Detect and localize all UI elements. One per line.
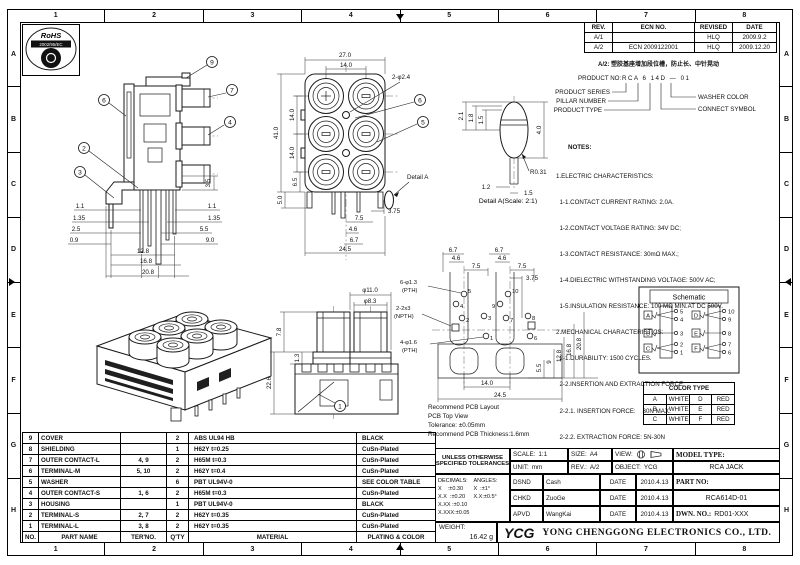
pillar-number-label: PILLAR NUMBER [556, 98, 606, 105]
dim-label: 24.5 [339, 246, 352, 253]
rohs-label: RoHS [41, 31, 61, 40]
group-letter: E [694, 332, 698, 338]
cell: C [644, 415, 667, 425]
product-no-label: PRODUCT NO: [578, 75, 621, 82]
dim-label: 1.35 [73, 215, 86, 222]
ruler-row: C [7, 153, 20, 218]
cell [121, 499, 167, 510]
header-cell: REVISED [695, 23, 733, 33]
cell: 2009.9.2 [733, 33, 777, 43]
designer-name: Cash [543, 474, 600, 490]
cell: 4 [23, 488, 39, 499]
dim-label: 14.0 [481, 380, 494, 387]
group-letter: D [694, 314, 698, 320]
schematic-title: Schematic [673, 295, 706, 302]
cell: CuSn-Plated [357, 521, 436, 532]
cell: 2 [167, 488, 189, 499]
cell: 6 [167, 477, 189, 488]
center-mark-icon [9, 278, 15, 286]
top-view-drawing: φ11.0 φ8.3 7.8 1.3 22.6 1 [262, 278, 402, 426]
cell: 2 [167, 466, 189, 477]
cell: A/2 [585, 43, 613, 53]
ruler-col: 8 [696, 543, 793, 556]
center-mark-icon [396, 14, 404, 20]
ruler-col: 8 [696, 9, 793, 22]
dim-label: 4.0 [536, 125, 543, 134]
cell: 1, 6 [121, 488, 167, 499]
dim-label: 14.0 [289, 146, 296, 159]
dwn-no-value: RD01-XXX [714, 511, 748, 518]
date-label: DATE [600, 474, 636, 490]
dim-label: 1.3 [294, 353, 301, 362]
dim-label: 6.7 [449, 247, 458, 254]
cell: 2 [23, 510, 39, 521]
product-no-value: RCA 6 14D — 01 [622, 75, 690, 82]
cell: 8 [23, 444, 39, 455]
header-cell: ECN NO. [613, 23, 695, 33]
pin-number: 4 [460, 304, 464, 310]
dim-label: 16.8 [140, 258, 153, 265]
group-letter: A [646, 314, 650, 320]
pin-number: 6 [728, 351, 731, 357]
dim-label: 2.5 [72, 226, 81, 233]
dim-label: 1.1 [208, 203, 217, 210]
part-no-label: PART NO: [676, 478, 709, 486]
dim-label: 5.5 [536, 363, 543, 372]
table-row: 9 COVER 2 ABS UL94 HB BLACK [23, 433, 436, 444]
ruler-row: E [7, 283, 20, 348]
cell: 5, 10 [121, 466, 167, 477]
weight-label: WEIGHT: [439, 524, 465, 531]
cell: SHIELDING [39, 444, 121, 455]
dim-label: 2-φ2.4 [392, 74, 411, 81]
cell: RED [712, 405, 735, 415]
date-label: DATE [600, 506, 636, 522]
pin-number: 9 [728, 318, 731, 324]
dim-label: 1.35 [208, 215, 221, 222]
cell: WASHER [39, 477, 121, 488]
table-row: 1TERMINAL-L3, 82H62Y t=0.35CuSn-Plated [23, 521, 436, 532]
dim-label: 7.5 [518, 263, 527, 270]
size-label: SIZE: [571, 451, 587, 458]
pcb-note-line: PCB Top View [428, 412, 593, 421]
header-cell: PART NAME [39, 532, 121, 543]
dim-label: 9.0 [206, 237, 215, 244]
pin-number: 2 [680, 343, 683, 349]
cell: ABS UL94 HB [189, 433, 357, 444]
dim-label: 4.6 [498, 255, 507, 262]
designer-role: DSND [510, 474, 543, 490]
pin-number: 4 [680, 318, 684, 324]
pin-number: 7 [510, 318, 513, 324]
cell: RED [712, 395, 735, 405]
cell: B [644, 405, 667, 415]
table-row: A/1 HLQ 2009.9.2 [585, 33, 777, 43]
header-cell: PLATING & COLOR [357, 532, 436, 543]
unit-label: UNIT: [513, 464, 529, 471]
cell: 2, 7 [121, 510, 167, 521]
ruler-col: 5 [401, 543, 499, 556]
pin-number: 2 [466, 318, 469, 324]
header-cell: DATE [733, 23, 777, 33]
cell: HOUSING [39, 499, 121, 510]
callout: 9 [210, 59, 214, 66]
group-letter: B [646, 332, 650, 338]
header-cell: REV. [585, 23, 613, 33]
ruler-col: 6 [499, 543, 597, 556]
table-row: 5WASHER6PBT UL94V-0SEE COLOR TABLE [23, 477, 436, 488]
ruler-col: 4 [302, 543, 400, 556]
scale-label: SCALE: [513, 451, 535, 458]
cell: H62Y t=0.25 [189, 444, 357, 455]
ruler-col: 6 [499, 9, 597, 22]
company-name: YONG CHENGGONG ELECTRONICS CO., LTD. [542, 528, 771, 538]
dim-label: 1.5 [524, 190, 533, 197]
model-type-value: RCA JACK [673, 461, 780, 474]
ruler-col: 1 [7, 543, 105, 556]
pin-number: 6 [534, 336, 537, 342]
ruler-col: 7 [597, 9, 695, 22]
header-cell: TER'NO. [121, 532, 167, 543]
note-line: 1-2.CONTACT VOLTAGE RATING: 34V DC; [556, 225, 792, 234]
ruler-col: 2 [105, 9, 203, 22]
cell: 6 [23, 466, 39, 477]
cell: PBT UL94V-0 [189, 499, 357, 510]
cell: 1 [23, 521, 39, 532]
cell: 2009.12.20 [733, 43, 777, 53]
table-row: REV. ECN NO. REVISED DATE [585, 23, 777, 33]
note-line: 1.ELECTRIC CHARACTERISTICS: [556, 173, 792, 182]
cell: OUTER CONTACT-L [39, 455, 121, 466]
dim-label: 12.8 [556, 349, 563, 362]
rev-value: A/2 [590, 464, 599, 471]
cell: 2 [167, 510, 189, 521]
pth-label: 4-φ1.6 [400, 340, 417, 346]
title-block: UNLESS OTHERWISE SPECIFIED TOLERANCES DE… [435, 448, 780, 543]
table-row: 2TERMINAL-S2, 72H62Y t=0.35CuSn-Plated [23, 510, 436, 521]
cell [121, 433, 167, 444]
checker-role: CHKD [510, 490, 543, 506]
table-row: A WHITE D RED [644, 395, 735, 405]
dim-label: 6.5 [292, 177, 299, 186]
callout: 1 [338, 403, 342, 410]
object-value: YCG [644, 464, 658, 471]
angle-tolerances: ANGLES: X :±1° X.X:±0.5° [473, 477, 497, 501]
cell [613, 33, 695, 43]
header-cell: MATERIAL [189, 532, 357, 543]
pin-number: 8 [728, 332, 731, 338]
part-no-value: RCA614D-01 [673, 490, 780, 506]
center-mark-icon [396, 544, 404, 550]
pcb-notes: Recommend PCB Layout PCB Top View Tolera… [428, 403, 593, 439]
pin-number: 10 [512, 289, 518, 295]
dim-label: 7.5 [355, 215, 364, 222]
pin-number: 5 [468, 289, 471, 295]
group-letter: F [694, 347, 698, 353]
cell: TERMINAL-L [39, 521, 121, 532]
scale-value: 1:1 [538, 451, 547, 458]
cell: BLACK [357, 499, 436, 510]
npth-label: (NPTH) [394, 314, 414, 320]
model-type-label: MODEL TYPE: [676, 451, 725, 459]
ruler-row: A [7, 22, 20, 87]
connect-symbol-label: CONNECT SYMBOL [698, 106, 757, 113]
approver-name: WangKai [543, 506, 600, 522]
dim-label: 20.8 [576, 337, 583, 350]
ruler-row: H [7, 479, 20, 543]
dim-label: φ11.0 [362, 287, 378, 294]
cell: 1 [167, 499, 189, 510]
cell: RED [712, 415, 735, 425]
dim-label: 6.7 [495, 247, 504, 254]
cell: H62Y t=0.4 [189, 466, 357, 477]
ruler-col: 3 [204, 9, 302, 22]
cell: F [689, 415, 712, 425]
dim-label: 1.8 [468, 113, 475, 122]
cell: TERMINAL-M [39, 466, 121, 477]
cell: CuSn-Plated [357, 455, 436, 466]
dim-label: 3.75 [526, 275, 539, 282]
dim-label: 27.0 [339, 52, 352, 59]
table-row: 3HOUSING1PBT UL94V-0BLACK [23, 499, 436, 510]
approver-role: APVD [510, 506, 543, 522]
table-row: 8SHIELDING1H62Y t=0.25CuSn-Plated [23, 444, 436, 455]
cell: SEE COLOR TABLE [357, 477, 436, 488]
rev-label: REV.: [571, 464, 587, 471]
pin-number: 1 [490, 336, 493, 342]
pin-number: 7 [728, 343, 731, 349]
dim-label: 2.1 [458, 111, 465, 120]
date-value: 2010.4.13 [636, 506, 673, 522]
pcb-layout-drawing: 5 4 2 3 1 10 9 7 8 6 6-φ1.3 (PTH) 2-2x3 … [392, 246, 608, 414]
checker-name: ZuoGe [543, 490, 600, 506]
dim-label: 7.8 [276, 327, 283, 336]
cell: CuSn-Plated [357, 510, 436, 521]
cell: CuSn-Plated [357, 488, 436, 499]
cell: TERMINAL-S [39, 510, 121, 521]
object-label: OBJECT: [615, 464, 641, 471]
dim-label: 4.6 [349, 226, 358, 233]
dim-label: 9 [546, 360, 553, 364]
rohs-directive: 2002/95/EC [39, 42, 62, 47]
projection-symbols-icon [636, 450, 666, 459]
tolerance-note: UNLESS OTHERWISE SPECIFIED TOLERANCES [436, 455, 509, 467]
npth-label: 2-2x3 [396, 306, 411, 312]
ruler-row: F [7, 348, 20, 413]
dim-label: 20.8 [142, 269, 155, 276]
pin-number: 3 [488, 316, 491, 322]
cell: WHITE [666, 405, 689, 415]
front-view-drawing: 27.0 14.0 2-φ2.4 41.0 14.0 14.0 6.5 5.0 … [237, 48, 465, 266]
cell: WHITE [666, 395, 689, 405]
dim-label: 22.6 [266, 376, 273, 389]
pin-number: 1 [680, 351, 683, 357]
ruler-col: 2 [105, 543, 203, 556]
pth-label: (PTH) [402, 348, 418, 354]
cell: BLACK [357, 433, 436, 444]
cell: 7 [23, 455, 39, 466]
cell: 3 [23, 499, 39, 510]
table-row: 7OUTER CONTACT-L4, 92H65M t=0.3CuSn-Plat… [23, 455, 436, 466]
decimals-tolerances: DECIMALS: X :±0.30 X.X :±0.20 X.XX :±0.1… [438, 477, 469, 517]
table-row: C WHITE F RED [644, 415, 735, 425]
pin-number: 8 [532, 316, 535, 322]
pcb-note-line: Recommend PCB Thickness:1.6mm [428, 430, 593, 439]
callout: 6 [418, 97, 422, 104]
dim-label: 24.5 [494, 392, 507, 399]
table-row: COLOR TYPE [644, 383, 735, 395]
table-row: A/2 ECN 2009122001 HLQ 2009.12.20 [585, 43, 777, 53]
dim-label: 1.2 [482, 184, 491, 191]
dim-label: 3.75 [388, 208, 401, 215]
ruler-col: 5 [401, 9, 499, 22]
pcb-note-line: Recommend PCB Layout [428, 403, 593, 412]
callout: 3 [78, 169, 82, 176]
dim-label: 3.5 [205, 178, 212, 187]
cell: ECN 2009122001 [613, 43, 695, 53]
ruler-row: D [7, 218, 20, 283]
pth-label: 6-φ1.3 [400, 280, 417, 286]
dim-label: 7.5 [472, 263, 481, 270]
cell: 2 [167, 433, 189, 444]
note-line: 1-1.CONTACT CURRENT RATING: 2.0A. [556, 199, 792, 208]
callout: 4 [228, 119, 232, 126]
dim-label: 16.8 [566, 343, 573, 356]
pin-number: 3 [680, 332, 683, 338]
dim-label: 14.0 [340, 62, 353, 69]
isometric-view-drawing [45, 280, 285, 432]
dim-label: 4.6 [452, 255, 461, 262]
table-row: 4OUTER CONTACT-S1, 62H65M t=0.3CuSn-Plat… [23, 488, 436, 499]
cell: H65M t=0.3 [189, 488, 357, 499]
cell: H62Y t=0.35 [189, 521, 357, 532]
company-logo: YCG [504, 525, 534, 541]
revision-note: A/2: 塑胶基座增加段位槽，防止长、中针晃动 [598, 59, 719, 68]
revision-table: REV. ECN NO. REVISED DATE A/1 HLQ 2009.9… [584, 22, 777, 53]
cell: PBT UL94V-0 [189, 477, 357, 488]
cell: CuSn-Plated [357, 466, 436, 477]
dim-label: 1.1 [76, 203, 85, 210]
pin-number: 9 [492, 304, 495, 310]
header-cell: NO. [23, 532, 39, 543]
cell: A [644, 395, 667, 405]
pcb-holes: 5 4 2 3 1 10 9 7 8 6 [452, 289, 537, 342]
cell: H65M t=0.3 [189, 455, 357, 466]
cell: 1 [167, 444, 189, 455]
cell: 9 [23, 433, 39, 444]
product-code-diagram: PRODUCT NO: RCA 6 14D — 01 PRODUCT SERIE… [550, 68, 792, 126]
table-row: NO. PART NAME TER'NO. Q'TY MATERIAL PLAT… [23, 532, 436, 543]
color-table-title: COLOR TYPE [644, 383, 735, 395]
cell: A/1 [585, 33, 613, 43]
dim-label: 1.5 [478, 115, 485, 124]
cell [121, 444, 167, 455]
size-value: A4 [590, 451, 598, 458]
dim-label: 5.5 [200, 226, 209, 233]
cell: HLQ [695, 33, 733, 43]
dim-label: 0.9 [70, 237, 79, 244]
cell: 2 [167, 455, 189, 466]
cell: CuSn-Plated [357, 444, 436, 455]
ruler-col: 1 [7, 9, 105, 22]
side-view-drawing: 9 7 4 6 2 3 3.5 1.1 1.1 1.35 1.35 2.5 5.… [48, 50, 258, 282]
date-label: DATE [600, 490, 636, 506]
cell: 4, 9 [121, 455, 167, 466]
cell: D [689, 395, 712, 405]
table-row: 6TERMINAL-M5, 102H62Y t=0.4CuSn-Plated [23, 466, 436, 477]
weight-value: 16.42 g [470, 534, 493, 541]
dim-label: 41.0 [273, 126, 280, 139]
cell: COVER [39, 433, 121, 444]
parts-table: 9 COVER 2 ABS UL94 HB BLACK 8SHIELDING1H… [22, 432, 436, 543]
dim-label: 12.8 [137, 248, 150, 255]
pin-number: 5 [680, 310, 683, 316]
detail-a-caption: Detail A(Scale: 2:1) [479, 198, 537, 204]
notes-title: NOTES: [556, 144, 792, 153]
unit-value: mm [532, 464, 543, 471]
dim-label: 6.7 [350, 237, 359, 244]
callout: 5 [421, 119, 425, 126]
pth-label: (PTH) [402, 288, 418, 294]
ruler-row: G [7, 414, 20, 479]
callout: 7 [230, 87, 234, 94]
date-value: 2010.4.13 [636, 490, 673, 506]
cell: 2 [167, 521, 189, 532]
detail-a-drawing: 2.1 1.8 1.5 4.0 R0.31 1.2 1.5 Detail A(S… [452, 92, 564, 204]
schematic-diagram: Schematic A 5 4 B 3 C 2 1 D 10 9 E 8 F 7… [638, 286, 740, 374]
callout: 6 [102, 97, 106, 104]
dwn-no-label: DWN. NO.: [676, 510, 711, 518]
ruler-row: B [7, 87, 20, 152]
pin-number: 10 [728, 310, 734, 316]
cell: H62Y t=0.35 [189, 510, 357, 521]
cell [121, 477, 167, 488]
date-value: 2010.4.13 [636, 474, 673, 490]
cell: HLQ [695, 43, 733, 53]
cell: E [689, 405, 712, 415]
color-type-table: COLOR TYPE A WHITE D RED B WHITE E RED C… [643, 382, 735, 425]
ruler-col: 4 [302, 9, 400, 22]
cell: OUTER CONTACT-S [39, 488, 121, 499]
ruler-col: 7 [597, 543, 695, 556]
dim-label: φ8.3 [364, 298, 377, 305]
table-row: B WHITE E RED [644, 405, 735, 415]
pcb-note-line: Tolerance: ±0.05mm [428, 421, 593, 430]
cell: 3, 8 [121, 521, 167, 532]
washer-color-label: WASHER COLOR [698, 94, 749, 101]
header-cell: Q'TY [167, 532, 189, 543]
dim-label: 14.0 [289, 108, 296, 121]
group-letter: C [646, 347, 650, 353]
cell: WHITE [666, 415, 689, 425]
dim-label: R0.31 [530, 169, 547, 176]
ruler-col: 3 [204, 543, 302, 556]
cell: 5 [23, 477, 39, 488]
engineering-drawing-sheet: 12345678 12345678 ABCDEFGH ABCDEFGH RoHS… [0, 0, 800, 565]
dim-label: 5.0 [277, 195, 284, 204]
product-series-label: PRODUCT SERIES [555, 89, 610, 96]
callout: 2 [82, 145, 86, 152]
view-label: VIEW: [615, 451, 633, 458]
product-type-label: PRODUCT TYPE [554, 107, 602, 114]
detail-a-label: Detail A [407, 174, 429, 181]
